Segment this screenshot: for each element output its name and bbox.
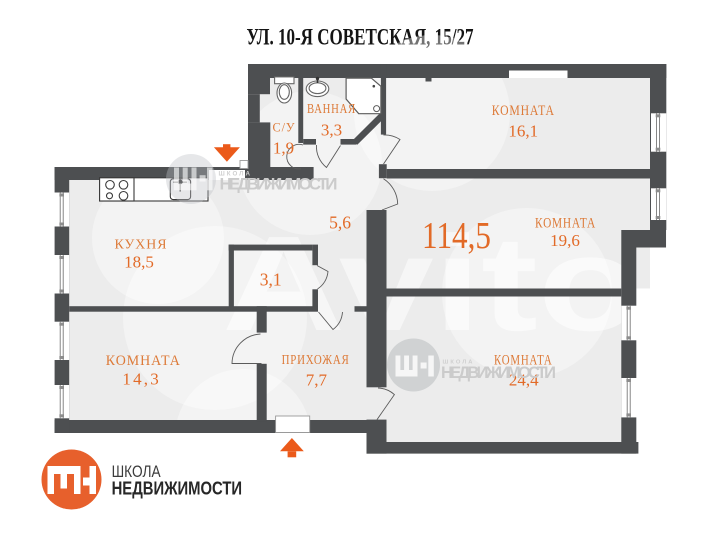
svg-text:С/У: С/У <box>273 120 296 135</box>
svg-text:КОМНАТА: КОМНАТА <box>492 103 555 119</box>
svg-text:3,1: 3,1 <box>260 270 282 290</box>
svg-text:16,1: 16,1 <box>508 122 538 141</box>
svg-text:114,5: 114,5 <box>422 214 491 257</box>
svg-text:3,3: 3,3 <box>321 121 342 140</box>
svg-text:КОМНАТА: КОМНАТА <box>106 353 181 369</box>
svg-text:1,9: 1,9 <box>273 139 294 158</box>
svg-text:19,6: 19,6 <box>550 231 580 250</box>
svg-text:КУХНЯ: КУХНЯ <box>115 238 168 253</box>
svg-text:НЕДВИЖИМОСТИ: НЕДВИЖИМОСТИ <box>220 175 338 194</box>
svg-text:14,3: 14,3 <box>122 370 161 389</box>
svg-text:7,7: 7,7 <box>306 371 328 390</box>
svg-text:ПРИХОЖАЯ: ПРИХОЖАЯ <box>282 353 350 368</box>
svg-text:НЕДВИЖИМОСТИ: НЕДВИЖИМОСТИ <box>112 477 243 498</box>
svg-text:НЕДВИЖИМОСТИ: НЕДВИЖИМОСТИ <box>441 364 556 382</box>
svg-text:КОМНАТА: КОМНАТА <box>535 216 596 232</box>
svg-text:ВАННАЯ: ВАННАЯ <box>307 102 356 117</box>
svg-text:18,5: 18,5 <box>124 253 154 272</box>
svg-text:5,6: 5,6 <box>329 213 351 233</box>
